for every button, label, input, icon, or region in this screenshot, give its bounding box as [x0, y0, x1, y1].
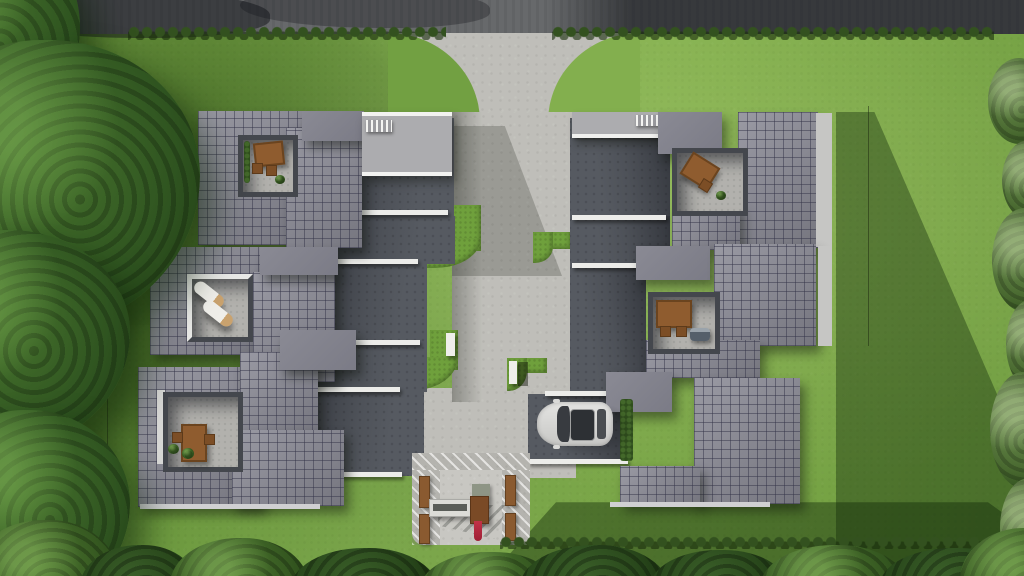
- roof-fascia: [818, 246, 832, 346]
- picnic-table: [429, 499, 473, 517]
- playground-bench: [505, 475, 516, 506]
- tiled-roof: [738, 112, 818, 248]
- island-bench: [446, 333, 455, 356]
- dividing-wall: [350, 210, 448, 215]
- dividing-wall: [336, 259, 418, 264]
- dining-table: [656, 300, 692, 328]
- play-tower: [470, 496, 489, 524]
- chair: [676, 326, 687, 337]
- hedge-row-road-left: [128, 26, 446, 40]
- chair: [204, 434, 215, 445]
- chair: [266, 165, 277, 176]
- dividing-wall: [572, 215, 666, 220]
- dividing-wall: [572, 263, 636, 268]
- island-bench: [509, 361, 517, 384]
- tiled-roof: [620, 466, 700, 504]
- flat-roof: [280, 330, 356, 370]
- playground-paving-hatch: [412, 453, 530, 470]
- grill: [690, 328, 710, 341]
- tiled-roof: [714, 244, 816, 346]
- car: [537, 402, 613, 446]
- terrace-shrub: [275, 175, 285, 184]
- terrace-shrub: [182, 448, 194, 459]
- picnic-table-top: [433, 504, 467, 511]
- flat-roof: [302, 111, 364, 141]
- playground-bench: [419, 514, 430, 544]
- car-sunroof: [570, 409, 595, 441]
- dividing-wall: [314, 387, 400, 392]
- tiled-roof: [694, 378, 800, 504]
- boundary-fence: [868, 106, 869, 346]
- car-mirror: [553, 445, 560, 449]
- roof-fascia: [610, 502, 770, 507]
- car-mirror: [553, 399, 560, 403]
- dividing-wall: [528, 459, 628, 464]
- stairs: [636, 115, 660, 126]
- aerial-render-canvas: [0, 0, 1024, 576]
- roof-fascia: [140, 504, 320, 509]
- terrace-hedge: [244, 141, 250, 183]
- hedge-row-road-right: [552, 26, 994, 40]
- flat-roof: [260, 247, 338, 275]
- terrace-shrub: [716, 191, 726, 200]
- roof-fascia: [816, 113, 832, 247]
- flat-roof: [636, 246, 710, 280]
- chair: [172, 432, 183, 443]
- stairs: [366, 120, 392, 132]
- car-rear-window: [597, 409, 606, 439]
- chair: [252, 163, 263, 174]
- tiled-roof: [232, 430, 344, 506]
- terrace-shrub: [168, 444, 179, 454]
- slide: [474, 521, 482, 541]
- chair: [660, 326, 671, 337]
- car-windshield: [557, 406, 570, 442]
- island-bench-shadow: [518, 362, 528, 386]
